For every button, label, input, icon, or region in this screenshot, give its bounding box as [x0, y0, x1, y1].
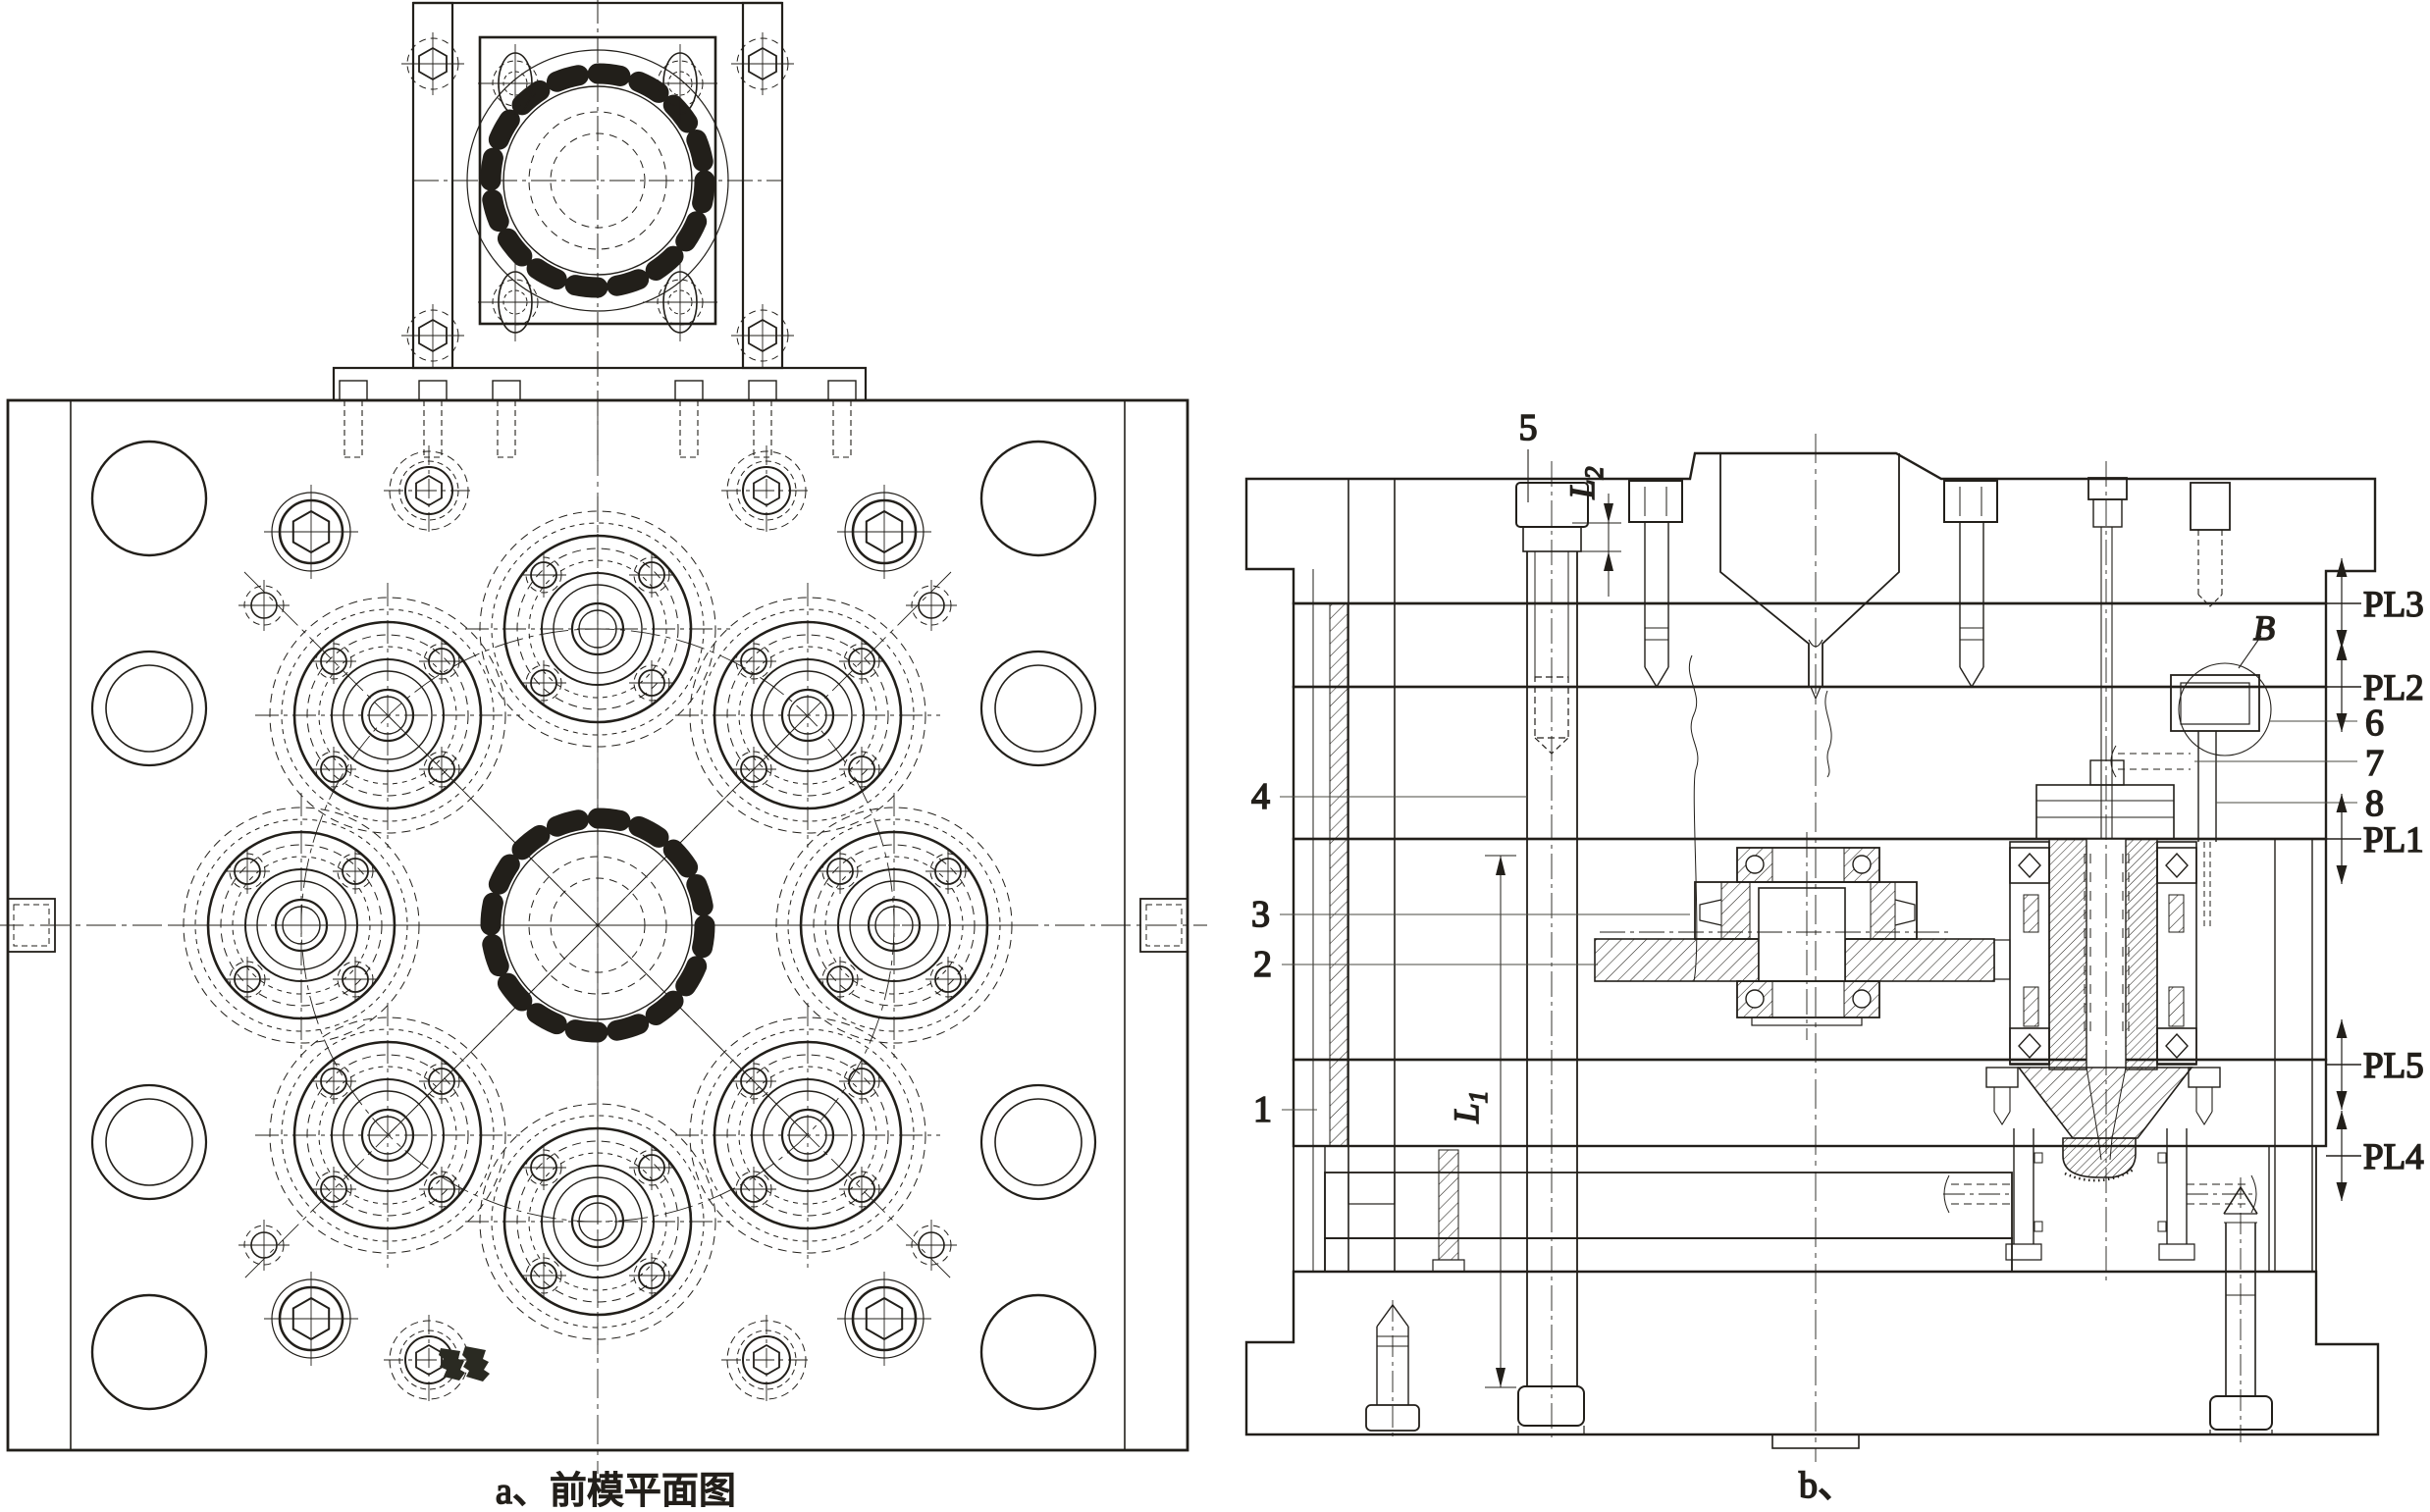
shoulder-bolt-left	[1629, 481, 1682, 687]
dim-l1-label: L1	[1447, 1090, 1493, 1123]
frame-bolt-icon	[731, 304, 794, 367]
flange-bolt-icon	[2157, 848, 2196, 883]
pin-hole-icon	[238, 1220, 290, 1271]
part-label-1: 1	[1253, 1089, 1272, 1130]
guide-bush-icon	[981, 1085, 1095, 1199]
bearing-block	[1595, 832, 2010, 1040]
corner-hole	[92, 1295, 206, 1409]
guide-bush-icon	[92, 1085, 206, 1199]
flange-bolt-icon	[2010, 848, 2049, 883]
frame-bolt-icon	[401, 32, 464, 95]
bearing-boss-icon	[478, 44, 553, 123]
ejector-plates	[1325, 1150, 2012, 1272]
plan-view: a、前模平面图	[0, 0, 1207, 1512]
hidden-conduits	[1943, 1175, 2257, 1213]
drawing-canvas: a、前模平面图	[0, 0, 2430, 1512]
part-label-7: 7	[2365, 743, 2384, 784]
socket-screw-icon	[384, 445, 474, 536]
socket-screw-icon	[264, 485, 358, 579]
socket-screw-icon	[721, 1315, 812, 1405]
slide-bar-right	[1845, 939, 1994, 981]
hatched-wear-strip	[1330, 603, 1347, 1146]
plan-caption: a、前模平面图	[496, 1471, 736, 1512]
dimension-l1: L1	[1447, 856, 1516, 1387]
bearing-ball-icon	[1853, 990, 1871, 1008]
flange-bolt-icon	[2157, 1028, 2196, 1064]
hidden-channel-7	[2111, 746, 2191, 777]
corner-hole	[981, 1295, 1095, 1409]
guide-bush-icon	[981, 652, 1095, 765]
socket-screw-icon	[837, 1272, 931, 1366]
front-mold-plate	[0, 400, 1207, 1474]
core-taper	[2019, 1068, 2192, 1138]
bottom-bolt-left	[1366, 1300, 1419, 1440]
limit-bolt-5	[1516, 461, 1588, 1442]
pl3-label: PL3	[2363, 585, 2424, 625]
flange-bolt-icon	[2010, 1028, 2049, 1064]
corner-hole	[92, 442, 206, 555]
corner-hole	[981, 442, 1095, 555]
guide-bush-icon	[92, 652, 206, 765]
bottom-clamp-plate	[1246, 1272, 2378, 1434]
part-label-4: 4	[1251, 776, 1270, 817]
frame-bolt-icon	[731, 32, 794, 95]
shoulder-bolt-right	[1944, 481, 1997, 687]
part-label-5: 5	[1519, 407, 1538, 448]
sprue-funnel	[1720, 453, 1899, 699]
socket-screw-icon	[721, 445, 812, 536]
bearing-ball-icon	[1853, 856, 1871, 873]
section-caption: b、	[1799, 1465, 1855, 1506]
part-label-3: 3	[1251, 894, 1270, 935]
frame-bolt-icon	[401, 304, 464, 367]
core-wall-right	[2126, 839, 2157, 1069]
ejector-guide-bush	[1439, 1150, 1458, 1260]
top-right-bolt	[2191, 483, 2230, 606]
pin-hole-icon	[238, 580, 290, 631]
socket-screw-icon	[837, 485, 931, 579]
pl1-label: PL1	[2363, 820, 2424, 860]
pl4-label: PL4	[2363, 1137, 2424, 1177]
part-label-2: 2	[1253, 944, 1272, 985]
bearing-ball-icon	[1746, 856, 1764, 873]
detail-label-b: B	[2253, 608, 2275, 648]
drawing-root: a、前模平面图	[0, 0, 2424, 1512]
bearing-ball-icon	[1746, 990, 1764, 1008]
pl2-label: PL2	[2363, 668, 2424, 708]
socket-screw-icon	[264, 1272, 358, 1366]
top-clamp-plate	[1246, 453, 2375, 603]
bearing-bore	[1759, 888, 1845, 981]
detail-circle-b	[2179, 663, 2271, 756]
top-sprocket-housing	[334, 0, 866, 461]
mold-engineering-drawing: a、前模平面图	[0, 0, 2430, 1512]
break-line	[1825, 691, 1831, 777]
slide-bar-left	[1595, 939, 1759, 981]
dimension-l2: L2	[1562, 466, 1621, 597]
part-label-8: 8	[2365, 783, 2384, 824]
part-label-6: 6	[2365, 703, 2384, 744]
pl5-label: PL5	[2363, 1046, 2424, 1086]
pin-hole-icon	[906, 580, 957, 631]
bearing-boss-icon	[643, 44, 717, 123]
section-view: L2 L1 5 4 3 2 1 6 7 8 B	[1246, 407, 2424, 1506]
core-wall-left	[2049, 839, 2087, 1069]
pin-hole-icon	[906, 1220, 957, 1271]
neck-plate	[334, 368, 866, 400]
parting-line-markers: PL3 PL2 PL1 PL5 PL4	[2326, 558, 2424, 1201]
bottom-bolt-right	[2210, 1177, 2272, 1442]
dim-l2-label: L2	[1562, 466, 1609, 499]
